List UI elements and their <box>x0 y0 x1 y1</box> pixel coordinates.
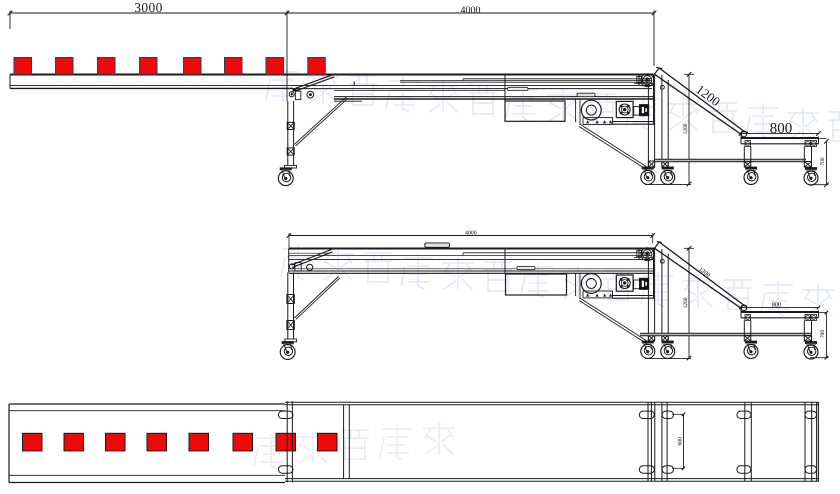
svg-text:800: 800 <box>772 301 781 308</box>
svg-text:4000: 4000 <box>461 5 481 16</box>
svg-text:3000: 3000 <box>134 0 163 15</box>
svg-text:4000: 4000 <box>465 230 477 236</box>
svg-text:1200: 1200 <box>683 297 689 308</box>
svg-text:600: 600 <box>678 437 684 446</box>
svg-text:1200: 1200 <box>683 123 689 134</box>
svg-text:800: 800 <box>770 121 793 137</box>
svg-text:700: 700 <box>820 157 826 165</box>
svg-text:700: 700 <box>820 330 826 338</box>
